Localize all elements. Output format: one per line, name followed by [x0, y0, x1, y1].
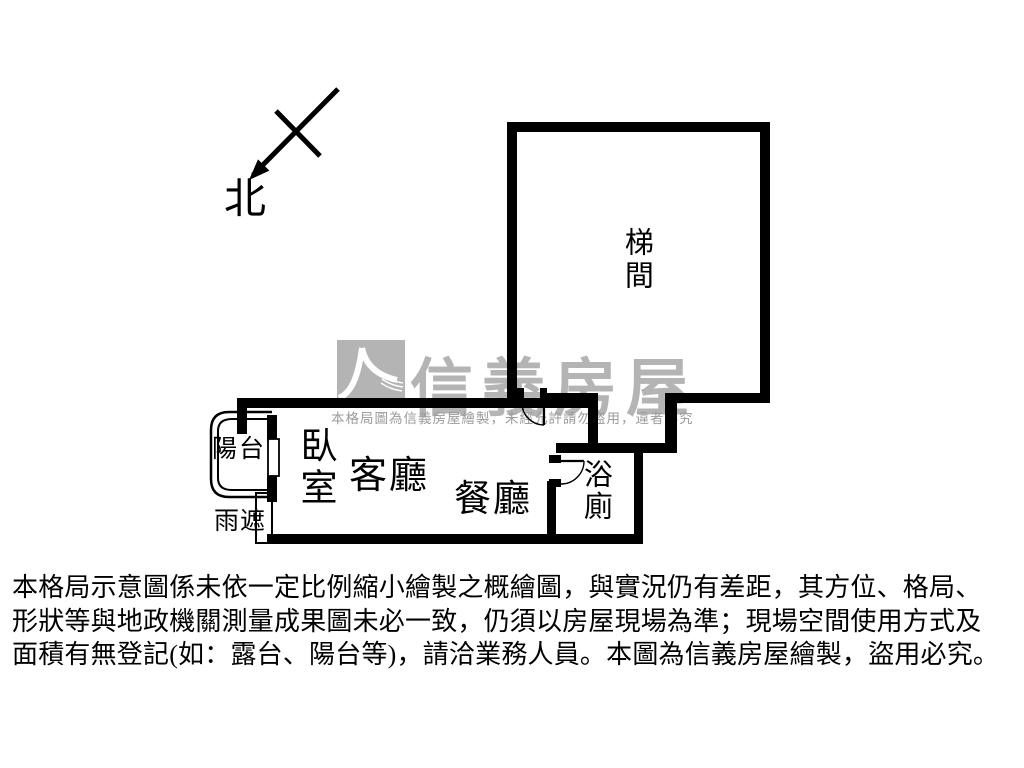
entrance-door-hinge-left	[517, 388, 524, 404]
floorplan-page: 信義房屋 本格局圖為信義房屋繪製，未經允許請勿盜用，違者必究	[0, 0, 1024, 768]
room-label-dining: 餐廳	[454, 480, 532, 520]
north-label: 北	[224, 178, 266, 223]
wall-bathroom-left	[547, 481, 556, 544]
wall-stairwell-right	[760, 122, 770, 403]
room-label-rain-shelter: 雨遮	[214, 508, 266, 535]
wall-stairwell-left	[507, 122, 517, 403]
wall-unit-topleft-stub	[237, 398, 247, 434]
wall-unit-bottom	[267, 534, 643, 544]
bathroom-door-hinge-top	[549, 455, 561, 463]
wall-stairwell-bottom-c	[665, 393, 770, 403]
disclaimer-line-1: 本格局示意圖係未依一定比例縮小繪製之概繪圖，與實況仍有差距，其方位、格局、	[12, 571, 1017, 605]
disclaimer-line-3: 面積有無登記(如：露台、陽台等)，請洽業務人員。本圖為信義房屋繪製，盜用必究。	[12, 638, 1017, 672]
room-label-stairwell: 梯間	[620, 227, 651, 293]
north-arrow-icon	[249, 89, 338, 180]
room-label-bedroom: 臥室	[294, 426, 334, 510]
wall-bathroom-right	[634, 443, 643, 544]
disclaimer-text: 本格局示意圖係未依一定比例縮小繪製之概繪圖，與實況仍有差距，其方位、格局、 形狀…	[12, 571, 1017, 672]
bedroom-window	[268, 439, 279, 476]
entrance-door-hinge-right	[540, 388, 547, 404]
disclaimer-line-2: 形狀等與地政機關測量成果圖未必一致，仍須以房屋現場為準；現場空間使用方式及	[12, 605, 1017, 639]
wall-bathroom-top	[556, 443, 677, 453]
room-label-balcony: 陽台	[212, 436, 266, 463]
bathroom-door-hinge-bottom	[549, 479, 561, 487]
room-label-living: 客廳	[349, 456, 429, 497]
room-label-bathroom: 浴廁	[579, 459, 610, 523]
wall-stairwell-top	[507, 122, 770, 132]
